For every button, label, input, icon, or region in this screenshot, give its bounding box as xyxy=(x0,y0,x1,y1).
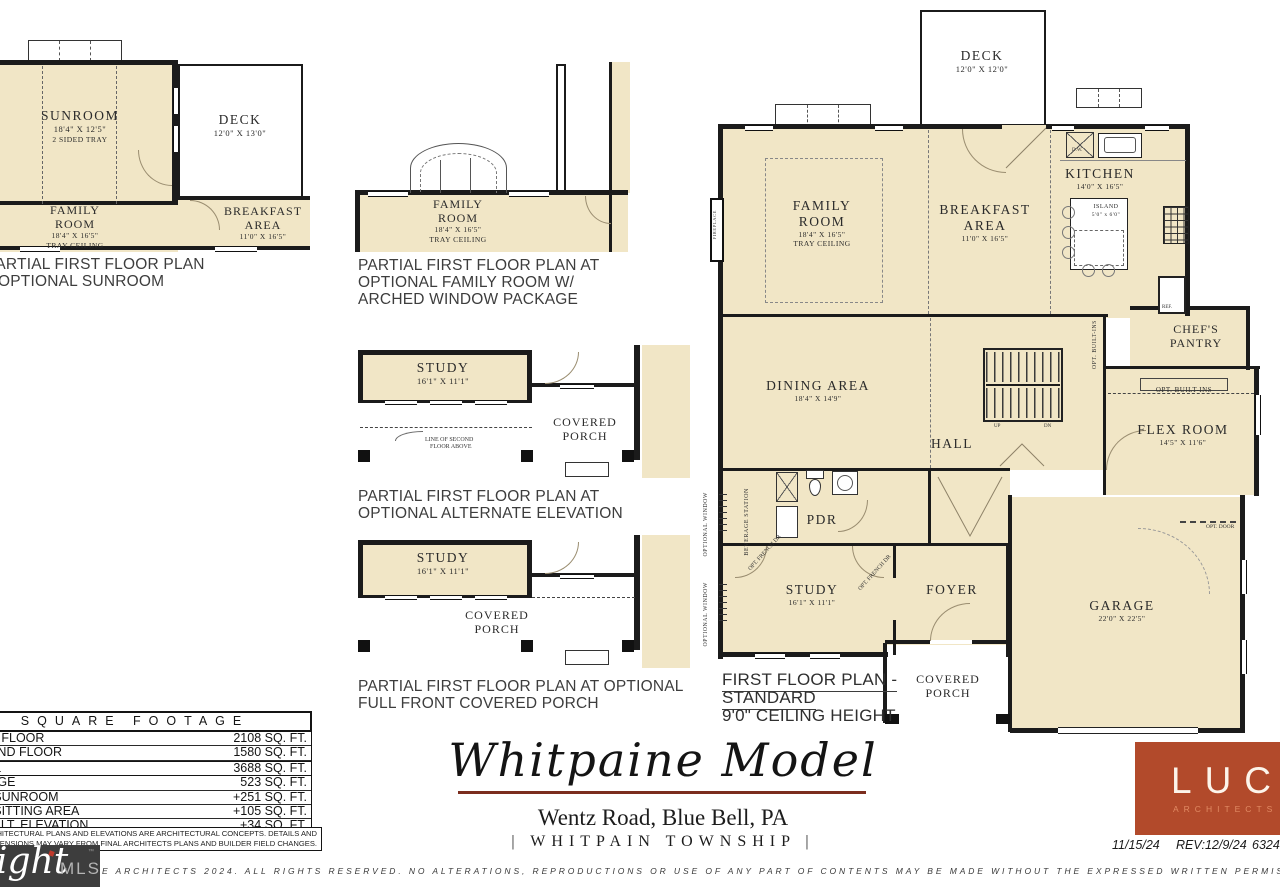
watermark-script-text: ight xyxy=(0,845,68,882)
plan-revision: REV:12/9/24 xyxy=(1176,838,1247,852)
disclaimer-line-1: THE ARCHITECTURAL PLANS AND ELEVATIONS A… xyxy=(0,829,317,839)
label-pdr: PDR xyxy=(807,512,838,528)
table-row: GARAGE523 SQ. FT. xyxy=(0,776,311,790)
copyright-line: E ARCHITECTS 2024. ALL RIGHTS RESERVED. … xyxy=(102,866,1280,876)
title-underline xyxy=(458,791,866,794)
caption-plan-b-2: OPTIONAL FAMILY ROOM W/ xyxy=(358,274,574,292)
label-kitchen: KITCHEN 14'0" X 16'5" xyxy=(1065,166,1135,191)
model-title: Whitpaine Model xyxy=(448,733,877,787)
address-line: Wentz Road, Blue Bell, PA xyxy=(538,805,788,831)
label-deck-main: DECK 12'0" X 12'0" xyxy=(956,48,1008,75)
label-study-d: STUDY 16'1" X 11'1" xyxy=(417,550,470,577)
bay-window xyxy=(28,40,122,62)
brightmls-watermark: ight MLS ™ xyxy=(0,845,100,887)
table-rows: FIRST FLOOR2108 SQ. FT. SECOND FLOOR1580… xyxy=(0,732,312,835)
label-deck-a: DECK 12'0" X 13'0" xyxy=(214,112,266,139)
label-porch-c: COVERED PORCH xyxy=(553,415,617,443)
label-ref: REF. xyxy=(1162,305,1172,310)
label-flex-room: FLEX ROOM 14'5" X 11'6" xyxy=(1137,422,1228,447)
label-family-a: FAMILY ROOM 18'4" X 16'5" TRAY CEILING xyxy=(46,203,103,250)
logo-brand: LUCE xyxy=(1171,760,1280,802)
label-dining-area: DINING AREA 18'4" X 14'9" xyxy=(766,378,870,403)
table-row: SECOND FLOOR1580 SQ. FT. xyxy=(0,746,311,760)
label-family-main: FAMILY ROOM 18'4" X 16'5" TRAY CEILING xyxy=(793,198,851,249)
label-study-c: STUDY 16'1" X 11'1" xyxy=(417,360,470,387)
architect-logo: LUCE ARCHITECTS xyxy=(1135,742,1280,835)
label-line-second-floor-1: LINE OF SECOND xyxy=(425,437,473,443)
township-line: | WHITPAIN TOWNSHIP | xyxy=(511,833,814,851)
label-chefs-pantry: CHEF'S PANTRY xyxy=(1170,322,1222,350)
watermark-mls-text: MLS xyxy=(60,859,100,879)
plan-job-number: 6324 xyxy=(1252,838,1280,852)
beverage-cabinet-upper xyxy=(776,472,798,502)
optional-window-upper xyxy=(719,494,727,532)
opt-builtins-cell: OPT. BUILT-INS xyxy=(1140,378,1228,391)
label-garage: GARAGE 22'0" X 22'5" xyxy=(1089,598,1154,623)
logo-subtitle: ARCHITECTS xyxy=(1173,804,1277,814)
caption-plan-b-1: PARTIAL FIRST FLOOR PLAN AT xyxy=(358,257,599,275)
beverage-cabinet-lower xyxy=(776,506,798,538)
caption-plan-d-2: FULL FRONT COVERED PORCH xyxy=(358,695,599,713)
house-edge-c xyxy=(642,345,690,478)
floor-plan-sheet: { "plan_a": { "caption1": "PARTIAL FIRST… xyxy=(0,0,1280,887)
pantry-shelving xyxy=(1163,206,1189,244)
label-opt-builtins: OPT. BUILT-INS xyxy=(1156,386,1212,394)
label-breakfast-a: BREAKFAST AREA 11'0" X 16'5" xyxy=(224,204,302,242)
bay-window-kitchen xyxy=(1076,88,1142,108)
watermark-trademark: ™ xyxy=(88,849,94,855)
label-dw: D.W. xyxy=(1072,148,1082,153)
label-line-second-floor-2: FLOOR ABOVE xyxy=(430,444,472,450)
table-header: SQUARE FOOTAGE xyxy=(0,711,312,732)
label-optional-window-2: OPTIONAL WINDOW xyxy=(703,582,709,647)
square-footage-table: SQUARE FOOTAGE FIRST FLOOR2108 SQ. FT. S… xyxy=(0,711,312,835)
stoop-d xyxy=(565,650,609,665)
house-edge-d xyxy=(642,535,690,668)
stoop-c xyxy=(565,462,609,477)
plan-date: 11/15/24 xyxy=(1112,838,1160,852)
caption-plan-d-1: PARTIAL FIRST FLOOR PLAN AT OPTIONAL xyxy=(358,678,684,696)
caption-plan-b-3: ARCHED WINDOW PACKAGE xyxy=(358,291,578,309)
optional-window-lower xyxy=(719,584,727,622)
label-family-b: FAMILY ROOM 18'4" X 16'5" TRAY CEILING xyxy=(429,197,486,244)
label-opt-builtins-vert: OPT. BUILT-INS xyxy=(1092,320,1098,369)
label-dn: DN xyxy=(1044,424,1051,429)
dishwasher xyxy=(1066,132,1094,158)
label-opt-door: OPT. DOOR xyxy=(1206,524,1234,530)
caption-plan-a-2: OPTIONAL SUNROOM xyxy=(0,273,164,291)
label-beverage-station: BEVERAGE STATION xyxy=(744,488,750,556)
label-hall: HALL xyxy=(931,436,973,452)
label-fireplace: FIREPLACE xyxy=(712,210,717,239)
wall-return-b xyxy=(612,62,630,193)
label-breakfast-main: BREAKFAST AREA 11'0" X 16'5" xyxy=(939,202,1030,243)
label-covered-porch-main: COVERED PORCH xyxy=(916,672,980,700)
label-island: ISLAND 5'0" x 6'0" xyxy=(1092,204,1120,218)
caption-plan-a-1: PARTIAL FIRST FLOOR PLAN xyxy=(0,256,205,274)
label-up: UP xyxy=(994,424,1000,429)
label-foyer: FOYER xyxy=(926,582,978,598)
table-row: OPT. SUNROOM+251 SQ. FT. xyxy=(0,791,311,805)
label-study-main: STUDY 16'1" X 11'1" xyxy=(786,582,839,607)
table-row-total: TOTAL3688 SQ. FT. xyxy=(0,761,311,776)
toilet-tank xyxy=(806,470,824,479)
label-sunroom: SUNROOM 18'4" X 12'5" 2 SIDED TRAY xyxy=(41,108,119,144)
label-porch-d: COVERED PORCH xyxy=(465,608,529,636)
caption-plan-c-1: PARTIAL FIRST FLOOR PLAN AT xyxy=(358,488,599,506)
table-row: OPT. SITTING AREA+105 SQ. FT. xyxy=(0,805,311,819)
caption-main-3: 9'0" CEILING HEIGHT xyxy=(722,706,896,726)
caption-plan-c-2: OPTIONAL ALTERNATE ELEVATION xyxy=(358,505,623,523)
table-row: FIRST FLOOR2108 SQ. FT. xyxy=(0,732,311,746)
label-optional-window-1: OPTIONAL WINDOW xyxy=(703,492,709,557)
